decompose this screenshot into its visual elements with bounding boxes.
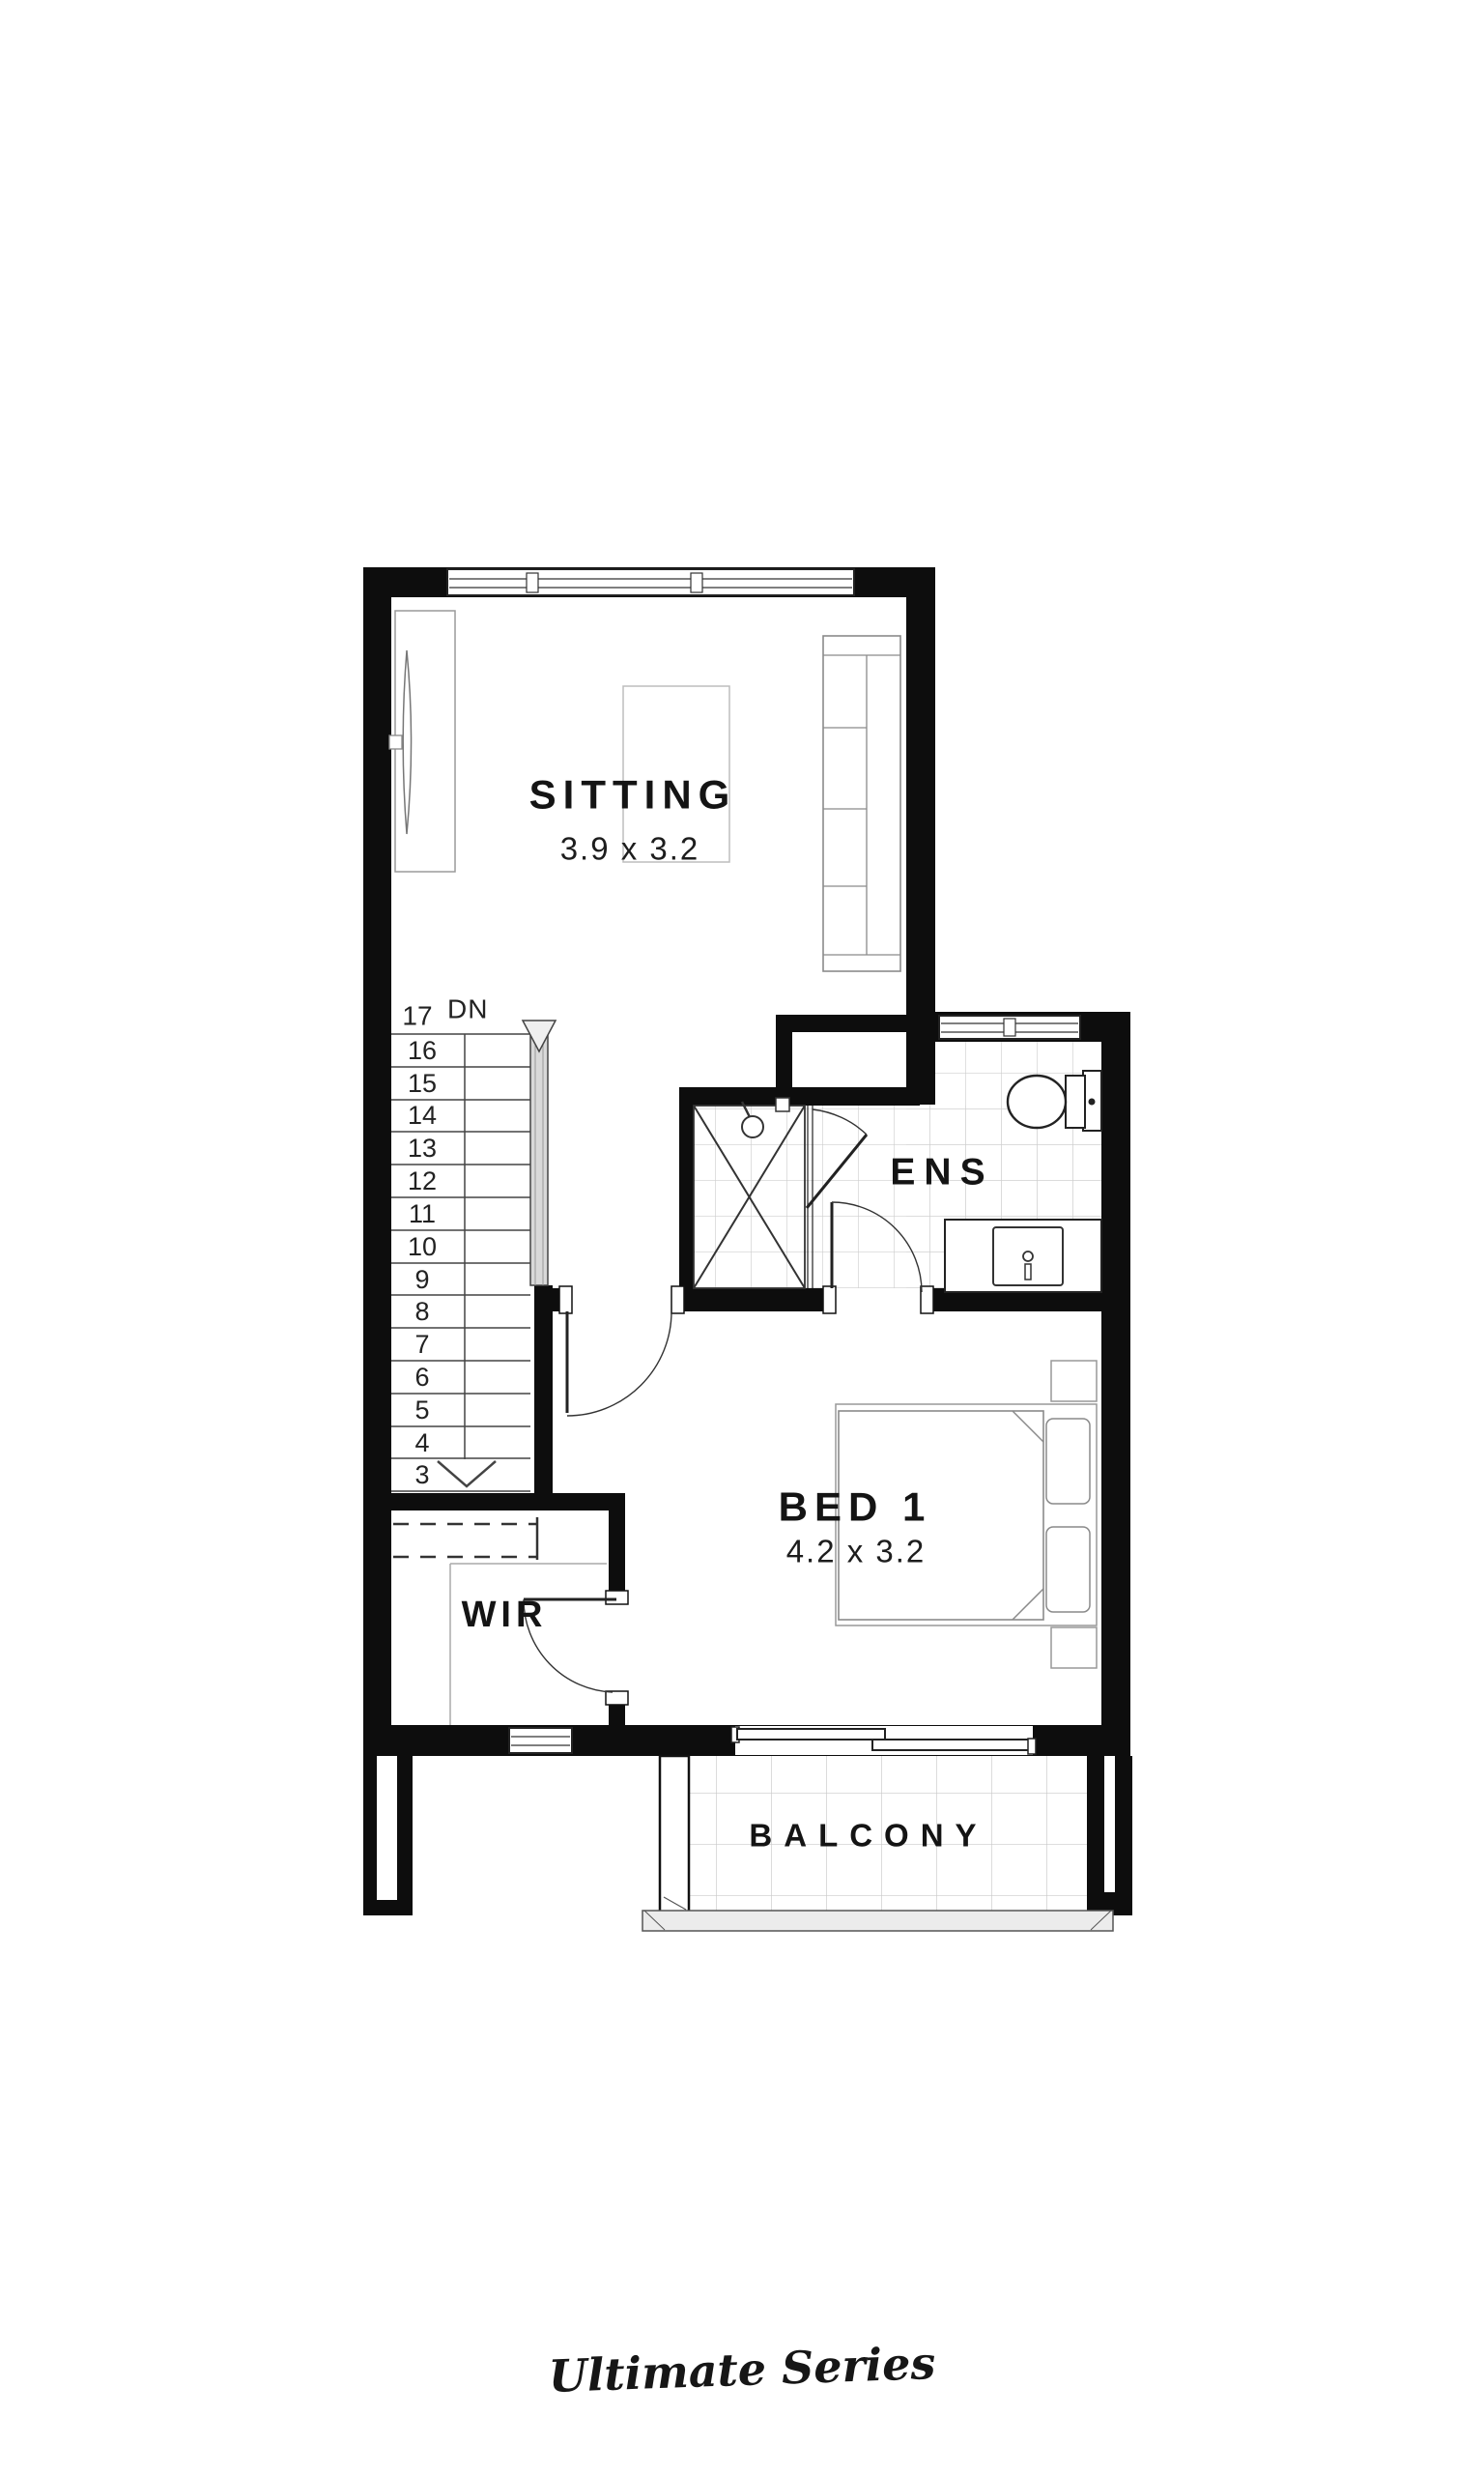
room-dims-bed1: 4.2 x 3.2 bbox=[786, 1534, 927, 1569]
wall-shower-top bbox=[679, 1087, 920, 1106]
series-branding: Ultimate Series bbox=[548, 2337, 936, 2402]
pillow bbox=[1046, 1527, 1090, 1612]
stair-step: 16 bbox=[408, 1036, 437, 1065]
stair-step: 13 bbox=[408, 1134, 437, 1163]
stair-step: 10 bbox=[408, 1232, 437, 1261]
stair-down-arrow bbox=[438, 1461, 496, 1486]
wir-door-opening bbox=[607, 1602, 627, 1693]
tv-mount bbox=[389, 735, 402, 749]
shower-head-icon bbox=[742, 1116, 763, 1137]
wall-shower-left bbox=[679, 1087, 694, 1311]
wall-right bbox=[1101, 1012, 1130, 1756]
wall-wir-top bbox=[391, 1493, 625, 1510]
stair-step: 11 bbox=[409, 1199, 436, 1228]
sliding-door-balcony bbox=[731, 1726, 1036, 1755]
stair-step: 12 bbox=[408, 1166, 437, 1195]
vanity bbox=[945, 1220, 1101, 1292]
porch-wall-left-inner bbox=[397, 1756, 413, 1901]
stair-step: 6 bbox=[414, 1363, 429, 1392]
jamb-ens-door-right bbox=[921, 1286, 933, 1313]
jamb-wir-door-top bbox=[606, 1591, 628, 1604]
wall-left bbox=[363, 567, 391, 1756]
room-label-bed1: BED 1 bbox=[779, 1484, 932, 1530]
wir-robe-rail bbox=[393, 1517, 537, 1560]
wall-stair-side bbox=[534, 1285, 553, 1493]
stair-step: 14 bbox=[408, 1101, 437, 1130]
shower-mixer-icon bbox=[776, 1098, 789, 1111]
jamb-bed-door-left bbox=[559, 1286, 572, 1313]
handrail-cap bbox=[523, 1021, 556, 1051]
wall-sitting-right bbox=[906, 567, 935, 1105]
stair-step-17: 17 bbox=[402, 1001, 432, 1031]
room-dims-sitting: 3.9 x 3.2 bbox=[560, 831, 700, 867]
balcony-wall-right-inner bbox=[1087, 1756, 1104, 1899]
vanity-tap-icon bbox=[1023, 1251, 1033, 1261]
room-label-sitting: SITTING bbox=[529, 772, 737, 818]
floor-plan-page: SITTING 3.9 x 3.2 ENS BED 1 4.2 x 3.2 WI… bbox=[0, 0, 1484, 2474]
floor-plan: SITTING 3.9 x 3.2 ENS BED 1 4.2 x 3.2 WI… bbox=[0, 0, 1484, 2474]
window-wir bbox=[509, 1728, 572, 1753]
stair-step: 5 bbox=[414, 1395, 429, 1424]
stair-step: 7 bbox=[414, 1330, 429, 1359]
bedside-table bbox=[1051, 1361, 1097, 1401]
bedside-table bbox=[1051, 1627, 1097, 1668]
stair-step: 8 bbox=[414, 1297, 429, 1326]
stair-step: 3 bbox=[414, 1460, 429, 1489]
stair-step: 15 bbox=[408, 1069, 437, 1098]
balcony-fascia bbox=[642, 1911, 1113, 1931]
room-label-ensuite: ENS bbox=[890, 1152, 993, 1194]
room-label-wir: WIR bbox=[462, 1595, 548, 1635]
balcony-pier-left bbox=[660, 1756, 689, 1912]
wall-sitting-bottom bbox=[776, 1015, 906, 1032]
jamb-ens-door-left bbox=[823, 1286, 836, 1313]
balcony-wall-right-outer bbox=[1115, 1756, 1132, 1915]
sofa bbox=[823, 636, 900, 971]
stair-step: 9 bbox=[414, 1265, 429, 1294]
porch-wall-left-outer bbox=[363, 1756, 377, 1915]
bed1-door bbox=[567, 1311, 671, 1416]
toilet bbox=[1008, 1071, 1101, 1131]
stair-direction-label: DN bbox=[447, 994, 488, 1024]
jamb-bed-door-right bbox=[671, 1286, 684, 1313]
pillow bbox=[1046, 1419, 1090, 1504]
window-sitting bbox=[447, 569, 854, 595]
stair-handrail bbox=[523, 1021, 556, 1285]
jamb-wir-door-bottom bbox=[606, 1691, 628, 1705]
porch-wall-left-bottom bbox=[363, 1900, 413, 1915]
wall-ensuite-south-left bbox=[684, 1288, 823, 1311]
stair-step: 4 bbox=[414, 1428, 429, 1457]
window-ensuite bbox=[939, 1016, 1080, 1039]
room-label-balcony: BALCONY bbox=[749, 1818, 987, 1854]
